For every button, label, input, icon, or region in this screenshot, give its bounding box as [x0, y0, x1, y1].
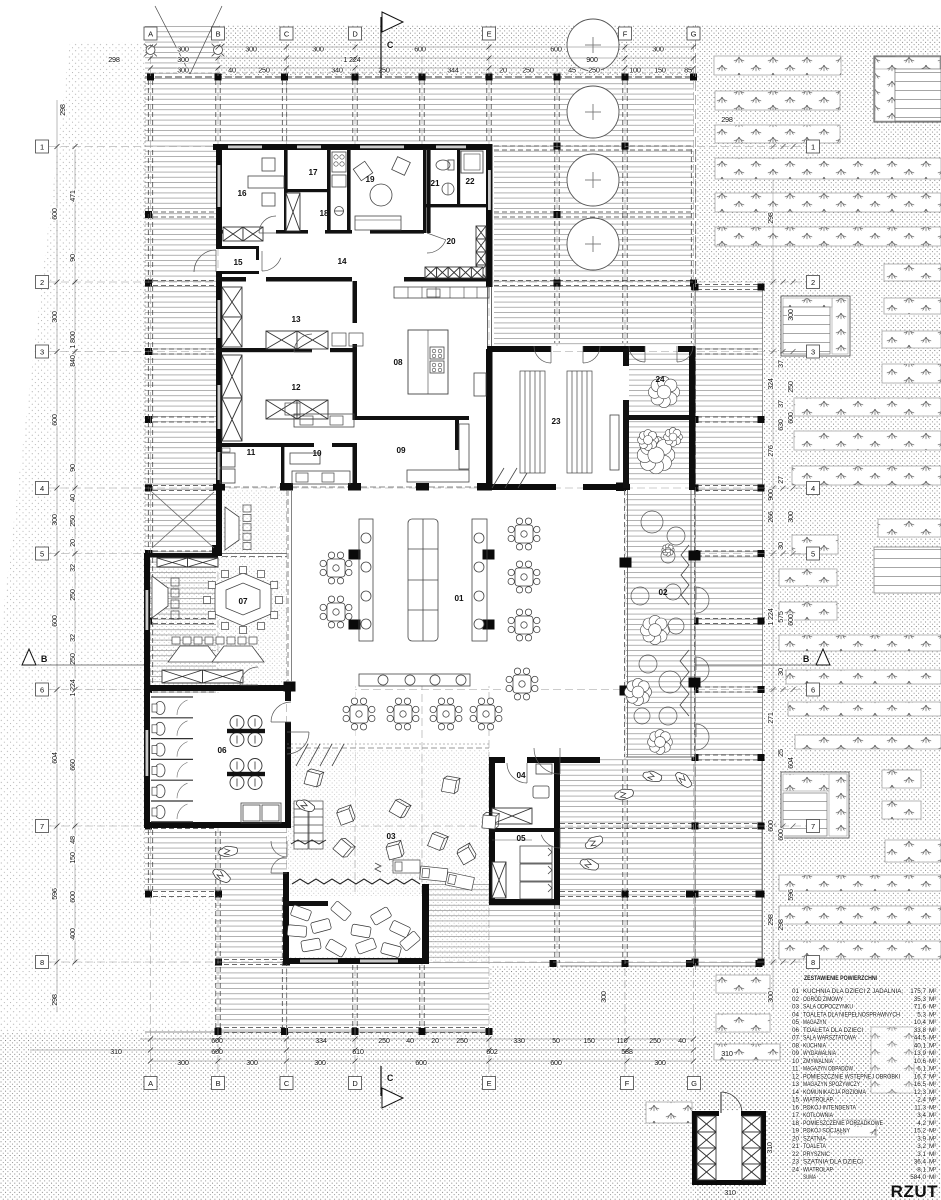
svg-text:600: 600 — [415, 1058, 427, 1067]
svg-text:SZATNIA DLA DZIECI: SZATNIA DLA DZIECI — [803, 1159, 863, 1166]
svg-text:300: 300 — [177, 66, 189, 75]
svg-text:300: 300 — [177, 1058, 189, 1067]
svg-text:M²: M² — [929, 1151, 936, 1158]
svg-text:G: G — [691, 1079, 697, 1088]
svg-text:11: 11 — [792, 1066, 799, 1073]
svg-text:45: 45 — [568, 66, 576, 75]
svg-text:600: 600 — [776, 829, 785, 841]
svg-text:300: 300 — [50, 311, 59, 323]
svg-text:250: 250 — [588, 66, 600, 75]
svg-text:07: 07 — [238, 597, 248, 606]
svg-text:471: 471 — [68, 190, 77, 202]
svg-text:03: 03 — [386, 832, 396, 841]
svg-text:32: 32 — [68, 564, 77, 572]
svg-text:M²: M² — [929, 1035, 936, 1042]
svg-text:298: 298 — [108, 55, 120, 64]
svg-text:15: 15 — [792, 1097, 800, 1104]
svg-text:05: 05 — [792, 1019, 800, 1026]
svg-text:24: 24 — [792, 1166, 800, 1173]
svg-text:23: 23 — [792, 1159, 800, 1166]
svg-text:25: 25 — [776, 749, 785, 757]
svg-text:300: 300 — [652, 45, 664, 54]
svg-text:310: 310 — [724, 1188, 736, 1197]
svg-text:7: 7 — [40, 822, 44, 831]
svg-text:10: 10 — [312, 449, 322, 458]
svg-text:19: 19 — [792, 1128, 800, 1135]
svg-text:10: 10 — [792, 1058, 800, 1065]
svg-text:600: 600 — [50, 615, 59, 627]
svg-text:16,5: 16,5 — [914, 1081, 927, 1088]
svg-text:600: 600 — [786, 412, 795, 424]
svg-text:298: 298 — [776, 919, 785, 931]
svg-text:KOTŁOWNIA: KOTŁOWNIA — [803, 1112, 834, 1119]
svg-text:M²: M² — [929, 1143, 936, 1150]
svg-text:300: 300 — [786, 511, 795, 523]
svg-text:40: 40 — [228, 66, 236, 75]
svg-text:20: 20 — [446, 237, 456, 246]
svg-text:17: 17 — [308, 168, 318, 177]
svg-text:334: 334 — [315, 1036, 327, 1045]
svg-text:150: 150 — [68, 852, 77, 864]
svg-text:175,7: 175,7 — [910, 988, 926, 995]
svg-text:584,0: 584,0 — [910, 1174, 926, 1181]
svg-text:276: 276 — [766, 445, 775, 457]
svg-text:03: 03 — [792, 1004, 800, 1011]
svg-text:3,2: 3,2 — [917, 1143, 926, 1150]
svg-text:27: 27 — [776, 476, 785, 484]
svg-text:KOMUNIKACJA POZIOMA: KOMUNIKACJA POZIOMA — [803, 1089, 867, 1096]
svg-text:M²: M² — [929, 1073, 936, 1080]
svg-text:300: 300 — [177, 55, 189, 64]
svg-text:08: 08 — [393, 358, 403, 367]
svg-text:300: 300 — [177, 45, 189, 54]
svg-text:5: 5 — [811, 549, 815, 558]
svg-text:298: 298 — [58, 104, 67, 116]
svg-text:6,1: 6,1 — [917, 1066, 926, 1073]
svg-text:36,4: 36,4 — [914, 1159, 927, 1166]
svg-text:575: 575 — [776, 611, 785, 623]
svg-text:E: E — [487, 1079, 492, 1088]
svg-text:5,3: 5,3 — [917, 1011, 926, 1018]
svg-text:16: 16 — [237, 189, 247, 198]
svg-text:TOALETA: TOALETA — [803, 1143, 827, 1150]
svg-text:E: E — [487, 30, 492, 39]
svg-text:50: 50 — [552, 1036, 560, 1045]
svg-text:150: 150 — [654, 66, 666, 75]
svg-text:5: 5 — [40, 549, 44, 558]
svg-text:POKÓJ SOCJALNY: POKÓJ SOCJALNY — [803, 1126, 851, 1135]
svg-text:OGRÓD ZIMOWY: OGRÓD ZIMOWY — [803, 994, 844, 1003]
svg-text:SALA ODPOCZYNKU: SALA ODPOCZYNKU — [803, 1004, 853, 1011]
svg-text:1 800: 1 800 — [68, 331, 77, 348]
svg-text:B: B — [216, 30, 221, 39]
svg-text:SZATNIA: SZATNIA — [803, 1135, 827, 1142]
svg-text:4,2: 4,2 — [917, 1120, 926, 1127]
svg-text:90: 90 — [68, 464, 77, 472]
svg-text:22: 22 — [465, 177, 475, 186]
svg-text:09: 09 — [396, 446, 406, 455]
svg-text:M²: M² — [929, 988, 936, 995]
svg-text:12: 12 — [792, 1073, 800, 1080]
svg-text:09: 09 — [792, 1050, 800, 1057]
svg-text:08: 08 — [792, 1042, 800, 1049]
svg-text:D: D — [352, 30, 358, 39]
svg-text:RZUT: RZUT — [891, 1182, 938, 1200]
svg-text:12,3: 12,3 — [914, 1089, 927, 1096]
svg-text:M²: M² — [929, 1066, 936, 1073]
svg-text:F: F — [623, 30, 628, 39]
svg-text:250: 250 — [456, 1036, 468, 1045]
svg-text:M²: M² — [929, 1135, 936, 1142]
svg-text:300: 300 — [50, 514, 59, 526]
svg-text:ZMYWALNIA: ZMYWALNIA — [803, 1058, 834, 1065]
svg-text:M²: M² — [929, 1166, 936, 1173]
svg-text:M²: M² — [929, 1050, 936, 1057]
svg-text:300: 300 — [599, 991, 608, 1003]
svg-text:44,5: 44,5 — [914, 1035, 927, 1042]
svg-text:3,9: 3,9 — [917, 1135, 926, 1142]
svg-text:M²: M² — [929, 1097, 936, 1104]
svg-text:7: 7 — [811, 822, 815, 831]
svg-text:02: 02 — [792, 996, 800, 1003]
svg-text:1 224: 1 224 — [766, 608, 775, 625]
svg-text:298: 298 — [50, 994, 59, 1006]
svg-text:300: 300 — [654, 1058, 666, 1067]
svg-text:WIATROŁAP: WIATROŁAP — [803, 1097, 833, 1104]
svg-text:4: 4 — [811, 484, 815, 493]
svg-text:C: C — [387, 40, 394, 50]
svg-text:40: 40 — [406, 1036, 414, 1045]
svg-text:266: 266 — [766, 511, 775, 523]
svg-text:1: 1 — [811, 142, 815, 151]
svg-text:M²: M² — [929, 1159, 936, 1166]
svg-text:600: 600 — [766, 820, 775, 832]
svg-text:250: 250 — [258, 66, 270, 75]
svg-text:250: 250 — [68, 515, 77, 527]
svg-text:310: 310 — [721, 1049, 733, 1058]
svg-text:1 224: 1 224 — [343, 55, 360, 64]
svg-text:15,2: 15,2 — [914, 1128, 927, 1135]
svg-text:SUMA: SUMA — [803, 1174, 817, 1181]
svg-text:19: 19 — [365, 175, 375, 184]
svg-text:B: B — [41, 654, 48, 664]
svg-text:48: 48 — [68, 836, 77, 844]
svg-text:MAGAZYN SPOŻYWCZY: MAGAZYN SPOŻYWCZY — [803, 1079, 861, 1088]
svg-text:604: 604 — [786, 757, 795, 769]
svg-text:A: A — [148, 30, 153, 39]
svg-text:POMIESZCZNIE WSTĘPNEJ OBRÓBKI: POMIESZCZNIE WSTĘPNEJ OBRÓBKI — [803, 1071, 900, 1080]
svg-text:14: 14 — [792, 1089, 800, 1096]
svg-text:M²: M² — [929, 1104, 936, 1111]
svg-text:15: 15 — [233, 258, 243, 267]
svg-text:3: 3 — [811, 347, 815, 356]
svg-text:4: 4 — [40, 484, 44, 493]
svg-text:300: 300 — [246, 1058, 258, 1067]
svg-text:85: 85 — [684, 66, 692, 75]
svg-text:33,8: 33,8 — [914, 1027, 927, 1034]
svg-text:840: 840 — [68, 355, 77, 367]
svg-text:588: 588 — [621, 1047, 633, 1056]
svg-text:POMIESZCZENIE PORZADKOWE: POMIESZCZENIE PORZADKOWE — [803, 1120, 883, 1127]
svg-text:596: 596 — [786, 889, 795, 901]
svg-text:14: 14 — [337, 257, 347, 266]
svg-text:300: 300 — [786, 309, 795, 321]
svg-text:06: 06 — [217, 746, 227, 755]
svg-text:8,1: 8,1 — [917, 1166, 926, 1173]
svg-text:300: 300 — [314, 1058, 326, 1067]
svg-text:600: 600 — [211, 1036, 223, 1045]
svg-text:250: 250 — [68, 589, 77, 601]
svg-text:M²: M² — [929, 1042, 936, 1049]
svg-text:M²: M² — [929, 1174, 936, 1181]
svg-text:40: 40 — [678, 1036, 686, 1045]
svg-text:600: 600 — [50, 414, 59, 426]
svg-text:TOALETA DLA NIEPEŁNOSPRAWNYCH: TOALETA DLA NIEPEŁNOSPRAWNYCH — [803, 1011, 900, 1018]
svg-text:MAGAZYN ODPADÓW: MAGAZYN ODPADÓW — [803, 1064, 853, 1073]
svg-text:17: 17 — [792, 1112, 800, 1119]
svg-text:07: 07 — [792, 1035, 800, 1042]
svg-text:06: 06 — [792, 1027, 800, 1034]
svg-text:600: 600 — [211, 1047, 223, 1056]
svg-text:324: 324 — [766, 378, 775, 390]
svg-text:11: 11 — [247, 448, 256, 457]
svg-text:13: 13 — [792, 1081, 800, 1088]
svg-text:600: 600 — [786, 614, 795, 626]
svg-text:MAGAZYN: MAGAZYN — [803, 1019, 826, 1026]
svg-text:271: 271 — [766, 712, 775, 724]
svg-text:21: 21 — [430, 179, 440, 188]
svg-text:04: 04 — [792, 1011, 800, 1018]
svg-text:600: 600 — [550, 1058, 562, 1067]
svg-text:40: 40 — [68, 494, 77, 502]
svg-text:300: 300 — [312, 45, 324, 54]
svg-text:10,6: 10,6 — [914, 1058, 927, 1065]
svg-text:250: 250 — [68, 653, 77, 665]
svg-text:C: C — [284, 30, 290, 39]
svg-text:604: 604 — [50, 752, 59, 764]
svg-text:05: 05 — [516, 834, 526, 843]
svg-text:6: 6 — [40, 685, 44, 694]
svg-text:344: 344 — [447, 66, 459, 75]
svg-text:600: 600 — [68, 891, 77, 903]
svg-text:300: 300 — [766, 991, 775, 1003]
svg-text:250: 250 — [786, 381, 795, 393]
svg-text:596: 596 — [50, 888, 59, 900]
svg-text:16,7: 16,7 — [914, 1073, 927, 1080]
svg-text:M²: M² — [929, 1089, 936, 1096]
svg-text:13: 13 — [291, 315, 301, 324]
svg-text:21: 21 — [792, 1143, 800, 1150]
svg-text:2: 2 — [811, 278, 815, 287]
svg-text:20: 20 — [431, 1036, 439, 1045]
svg-text:C: C — [284, 1079, 290, 1088]
svg-text:3,4: 3,4 — [917, 1112, 926, 1119]
svg-text:400: 400 — [68, 928, 77, 940]
svg-text:M²: M² — [929, 1112, 936, 1119]
svg-text:02: 02 — [658, 588, 668, 597]
svg-text:KUCHNIA: KUCHNIA — [803, 1042, 827, 1049]
svg-text:1 224: 1 224 — [68, 679, 77, 696]
svg-text:300: 300 — [245, 45, 257, 54]
svg-text:298: 298 — [766, 212, 775, 224]
svg-text:F: F — [625, 1079, 630, 1088]
svg-text:30: 30 — [776, 542, 785, 550]
svg-text:32: 32 — [68, 634, 77, 642]
svg-text:250: 250 — [522, 66, 534, 75]
svg-text:23: 23 — [551, 417, 561, 426]
svg-text:M²: M² — [929, 996, 936, 1003]
svg-text:2,4: 2,4 — [917, 1097, 926, 1104]
svg-text:150: 150 — [583, 1036, 595, 1045]
svg-text:310: 310 — [110, 1047, 122, 1056]
svg-text:37: 37 — [776, 400, 785, 408]
svg-text:900: 900 — [766, 489, 775, 501]
svg-text:PRYSZNIC: PRYSZNIC — [803, 1151, 830, 1158]
svg-text:A: A — [148, 1079, 153, 1088]
svg-text:1: 1 — [40, 142, 44, 151]
svg-text:100: 100 — [629, 66, 641, 75]
svg-text:250: 250 — [378, 66, 390, 75]
svg-text:WIATROŁAP: WIATROŁAP — [803, 1166, 833, 1173]
svg-text:SALA WARSZTATOWA: SALA WARSZTATOWA — [803, 1035, 857, 1042]
svg-text:340: 340 — [331, 66, 343, 75]
svg-text:3,1: 3,1 — [917, 1151, 926, 1158]
svg-text:M²: M² — [929, 1019, 936, 1026]
svg-text:D: D — [352, 1079, 358, 1088]
svg-text:11,3: 11,3 — [914, 1104, 926, 1111]
svg-text:WYDAWALNIA: WYDAWALNIA — [803, 1050, 837, 1057]
svg-text:18: 18 — [319, 209, 329, 218]
svg-text:01: 01 — [792, 988, 800, 995]
svg-text:M²: M² — [929, 1004, 936, 1011]
svg-text:M²: M² — [929, 1128, 936, 1135]
svg-text:ZESTAWIENIE POWIERZCHNI: ZESTAWIENIE POWIERZCHNI — [804, 975, 877, 982]
svg-text:B: B — [216, 1079, 221, 1088]
svg-text:630: 630 — [776, 419, 785, 431]
svg-text:13,9: 13,9 — [914, 1050, 927, 1057]
svg-text:TOALETA DLA DZIECI: TOALETA DLA DZIECI — [803, 1027, 863, 1034]
svg-text:18: 18 — [792, 1120, 800, 1127]
svg-text:250: 250 — [649, 1036, 661, 1045]
svg-text:20: 20 — [499, 66, 507, 75]
svg-text:37: 37 — [776, 360, 785, 368]
svg-text:M²: M² — [929, 1011, 936, 1018]
svg-text:20: 20 — [792, 1135, 800, 1142]
svg-text:600: 600 — [50, 208, 59, 220]
svg-text:8: 8 — [811, 958, 815, 967]
svg-text:600: 600 — [550, 45, 562, 54]
svg-text:90: 90 — [68, 254, 77, 262]
svg-text:16: 16 — [792, 1104, 800, 1111]
svg-text:22: 22 — [792, 1151, 800, 1158]
svg-text:660: 660 — [68, 759, 77, 771]
svg-text:250: 250 — [378, 1036, 390, 1045]
svg-text:04: 04 — [516, 771, 526, 780]
svg-text:30: 30 — [776, 668, 785, 676]
svg-text:71,6: 71,6 — [914, 1004, 927, 1011]
svg-text:35,3: 35,3 — [914, 996, 927, 1003]
svg-text:298: 298 — [766, 914, 775, 926]
svg-text:POKÓJ INTENDENTA: POKÓJ INTENDENTA — [803, 1102, 857, 1111]
svg-text:12: 12 — [291, 383, 301, 392]
svg-text:B: B — [803, 654, 810, 664]
svg-text:M²: M² — [929, 1120, 936, 1127]
svg-text:C: C — [387, 1073, 394, 1083]
svg-text:G: G — [691, 30, 697, 39]
svg-text:24: 24 — [655, 375, 665, 384]
svg-text:10,4: 10,4 — [914, 1019, 927, 1026]
svg-text:900: 900 — [586, 55, 598, 64]
svg-text:6: 6 — [811, 685, 815, 694]
svg-text:3: 3 — [40, 347, 44, 356]
svg-text:M²: M² — [929, 1081, 936, 1088]
svg-text:M²: M² — [929, 1027, 936, 1034]
svg-text:2: 2 — [40, 278, 44, 287]
svg-text:8: 8 — [40, 958, 44, 967]
svg-text:KUCHNIA DLA DZIECI Z JADALNIA,: KUCHNIA DLA DZIECI Z JADALNIA, — [803, 988, 903, 995]
svg-text:310: 310 — [765, 1142, 774, 1154]
svg-text:298: 298 — [721, 115, 733, 124]
svg-text:600: 600 — [414, 45, 426, 54]
svg-text:M²: M² — [929, 1058, 936, 1065]
svg-text:40,1: 40,1 — [914, 1042, 927, 1049]
svg-text:01: 01 — [454, 594, 464, 603]
svg-text:330: 330 — [513, 1036, 525, 1045]
svg-text:20: 20 — [68, 539, 77, 547]
